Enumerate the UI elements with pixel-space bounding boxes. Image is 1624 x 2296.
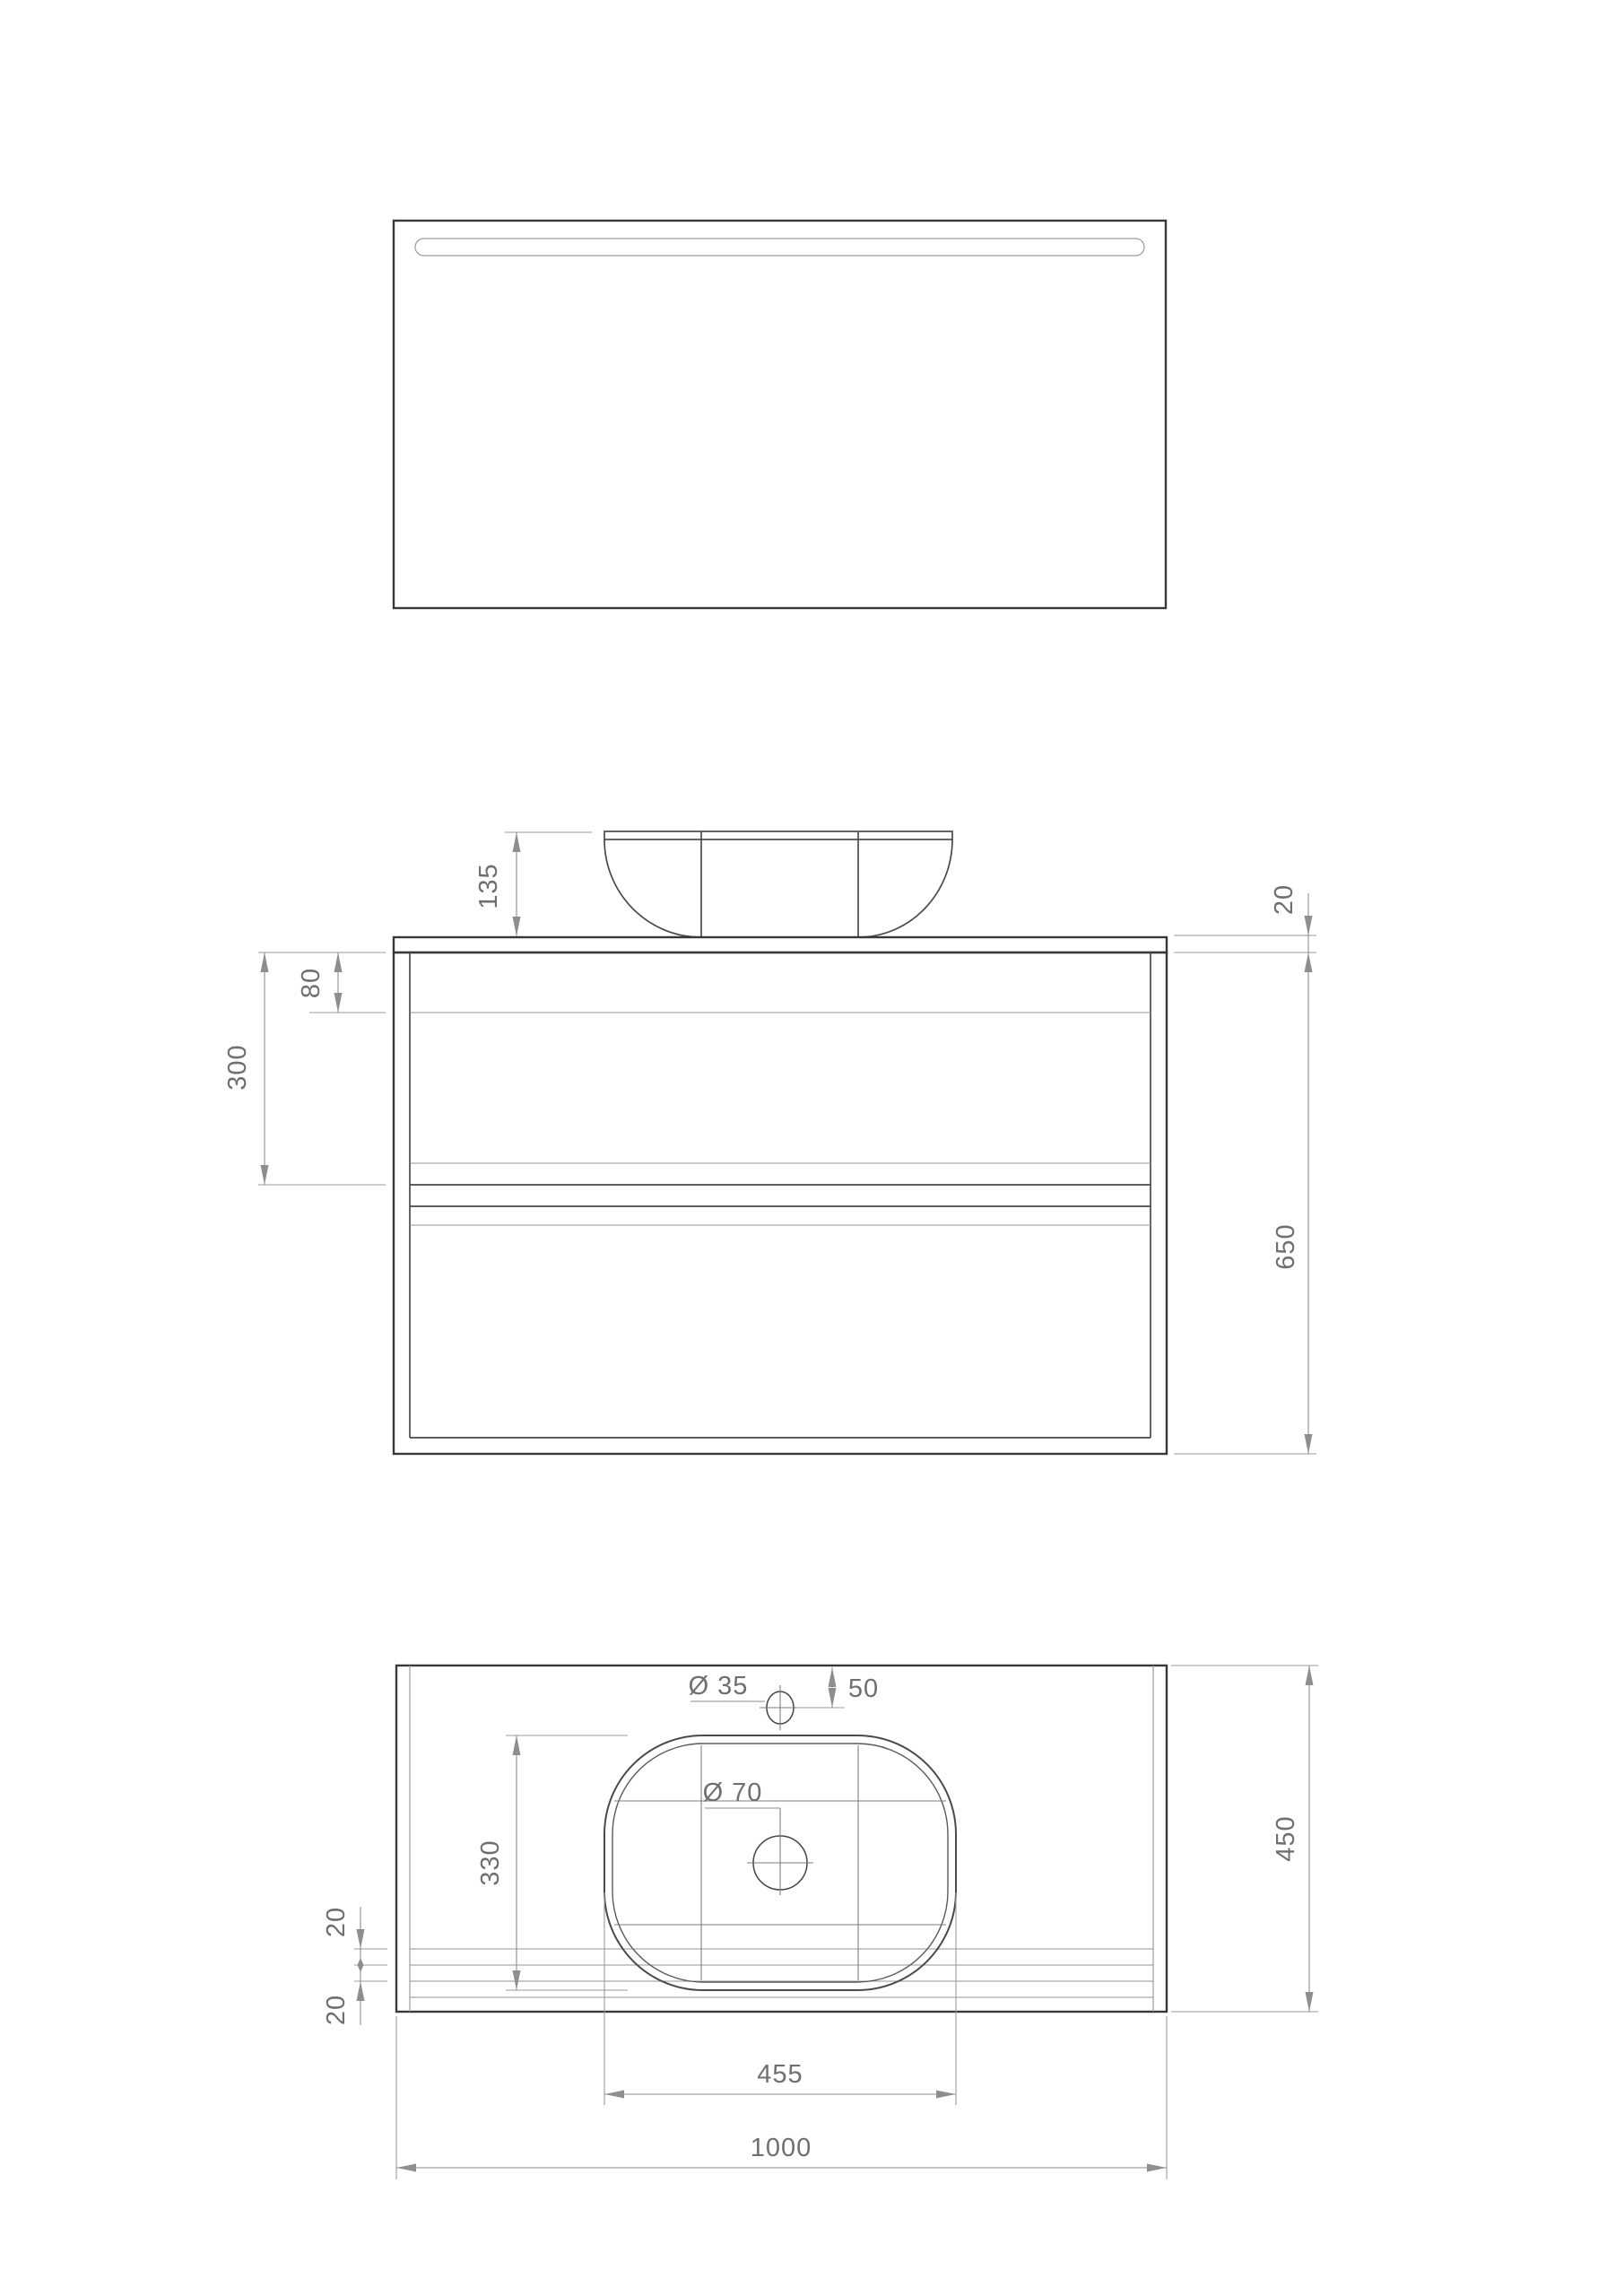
vanity-technical-drawing: 135 80 300 20 650: [0, 0, 1624, 2296]
dim-label-front-edge-gap-b: 20: [322, 1995, 351, 2025]
countertop-plan-view: Ø 35 50 Ø 70 330 20: [322, 1665, 1318, 2179]
dim-label-countertop-depth: 450: [1272, 1815, 1300, 1861]
mirror-light-slot: [415, 239, 1144, 256]
dim-label-front-edge-gap-a: 20: [322, 1907, 351, 1937]
dim-front-edge-gaps: 20 20: [322, 1907, 387, 2025]
dim-label-basin-depth: 330: [476, 1839, 505, 1885]
dim-label-basin-width: 455: [757, 2060, 803, 2089]
dim-label-basin-height: 135: [474, 863, 503, 909]
drawing-page: 135 80 300 20 650: [0, 0, 1624, 2296]
dim-label-drain-hole: Ø 70: [703, 1779, 763, 1807]
dim-cabinet-height: 650: [1174, 952, 1316, 1454]
vessel-basin-front: [604, 831, 952, 937]
dim-countertop-thickness: 20: [1174, 884, 1316, 952]
dim-label-top-drawer-gap: 80: [297, 968, 326, 998]
countertop-outline: [396, 1665, 1167, 2012]
dim-label-countertop-thickness: 20: [1270, 884, 1298, 915]
dim-countertop-depth: 450: [1171, 1665, 1318, 2012]
dim-total-width: 1000: [396, 2016, 1167, 2179]
cabinet-front-view: 135 80 300 20 650: [223, 831, 1316, 1454]
dim-label-open-compartment: 300: [223, 1044, 252, 1090]
mirror-frame: [394, 221, 1166, 608]
faucet-hole-group: Ø 35: [689, 1672, 801, 1730]
basin-left-curve: [604, 839, 701, 937]
dim-label-faucet-offset: 50: [848, 1674, 879, 1703]
mirror-front-view: [394, 221, 1166, 608]
dim-top-drawer-gap: 80: [258, 952, 386, 1013]
dim-faucet-offset: 50: [796, 1667, 879, 1708]
dim-basin-height: 135: [474, 832, 592, 936]
dim-label-cabinet-height: 650: [1272, 1223, 1300, 1269]
dim-label-total-width: 1000: [751, 2134, 812, 2162]
countertop-front: [394, 937, 1167, 952]
dim-tick-diamond: [358, 1958, 364, 1972]
drain-label-group: Ø 70: [703, 1779, 780, 1808]
cabinet-body: [394, 952, 1167, 1454]
basin-plan: [604, 1735, 956, 1990]
basin-right-curve: [858, 839, 952, 937]
dim-label-faucet-hole: Ø 35: [689, 1672, 749, 1700]
basin-rim: [604, 831, 952, 839]
